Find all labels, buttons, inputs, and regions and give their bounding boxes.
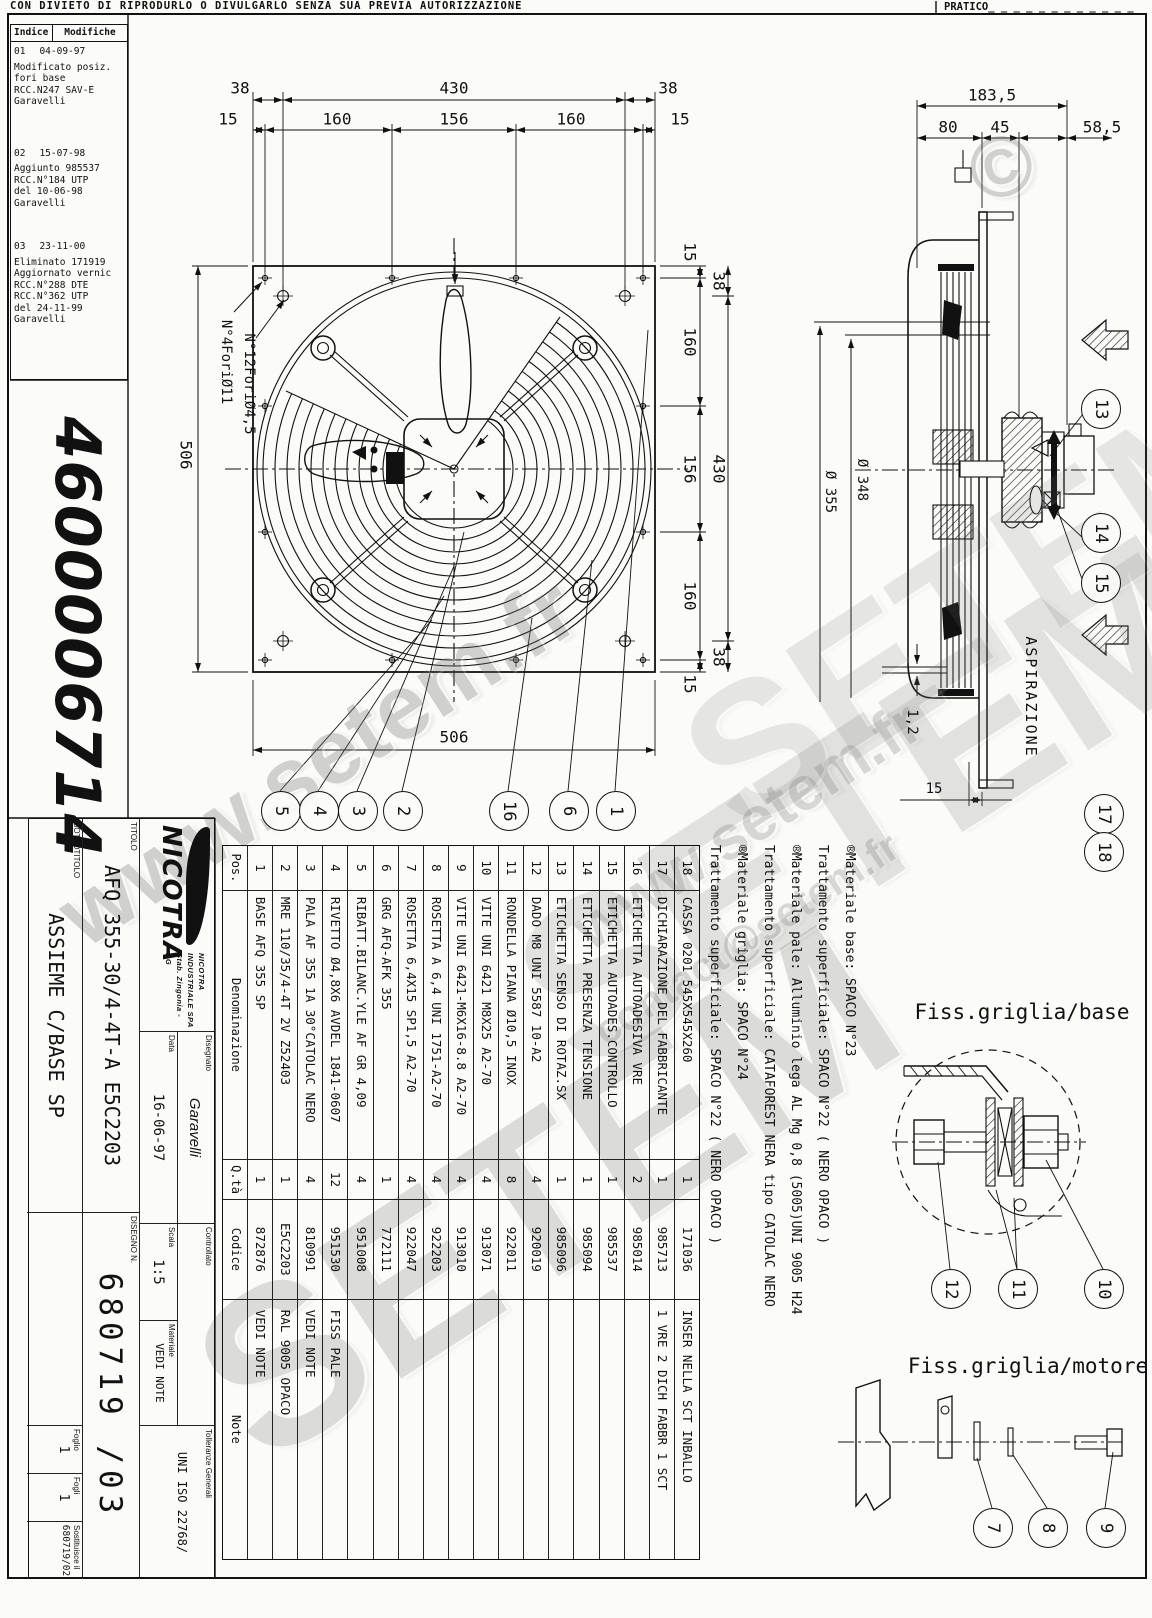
parts-row: 15ETICHETTA AUTOADES.CONTROLLO1985537 [599,846,624,1559]
parts-cell-qty: 4 [298,1160,322,1200]
document-number: 4600006714 [32,462,124,812]
revision-line: Garavelli [14,198,124,210]
fogli-cell: Fogli 1 [27,1474,82,1522]
document-number-text: 4600006714 [42,416,115,857]
parts-row: 5RIBATT.BILANC.YLE AF GR 4,094951008 [347,846,372,1559]
parts-row: 13ETICHETTA SENSO DI ROTAZ.SX1985096 [548,846,573,1559]
parts-row: 3PALA AF 355 1A 30°CATOLAC NERO4810991VE… [297,846,322,1559]
revision-line: Modificato posiz. [14,62,124,74]
parts-cell-den: DICHIARAZIONE DEL FABBRICANTE [650,891,674,1160]
foglio-cell: Foglio 1 [27,1426,82,1474]
parts-cell-pos: 18 [675,846,699,891]
parts-cell-code: 922047 [399,1200,423,1300]
scala-cell: Scala 1:5 [139,1224,177,1321]
parts-cell-note [449,1300,473,1559]
material-note-line: Trattamento superficiale: CATAFOREST NER… [755,845,782,1330]
detail-drawings [838,1050,1122,1510]
disegnato-cell: Disegnato Garavelli [177,1032,214,1224]
dim-label: 160 [681,582,700,611]
parts-row: 12DADO M8 UNI 5587 10-A24920019 [523,846,548,1559]
parts-cell-qty: 12 [323,1160,347,1200]
parts-table: 18CASSA 0201 545X545X2601171036INSER NEL… [222,845,700,1560]
revision-line: RCC.N247 SAV-E [14,85,124,97]
parts-cell-note [499,1300,523,1559]
dim-label: 506 [177,441,196,470]
dim-label: 80 [938,118,957,137]
balloon-18: 18 [1084,832,1124,872]
empty-cell [27,1213,82,1426]
parts-cell-note: 1 VRE 2 DICH FABBR 1 SCT [650,1300,674,1559]
parts-cell-code: 922203 [424,1200,448,1300]
revision-line: RCC.N°184 UTP [14,175,124,187]
fogli-value: 1 [56,1474,71,1521]
sottotitolo-label: SOTTOTITOLO [71,819,82,1212]
parts-cell-pos: 2 [273,846,297,891]
parts-cell-code: 922011 [499,1200,523,1300]
parts-cell-qty: 1 [600,1160,624,1200]
parts-cell-code: 772111 [374,1200,398,1300]
reproduction-disclaimer: CON DIVIETO DI RIPRODURLO O DIVULGARLO S… [10,0,523,12]
parts-cell-qty: 2 [625,1160,649,1200]
parts-cell-den: ETICHETTA AUTOADES.CONTROLLO [600,891,624,1160]
materiale-value: VEDI NOTE [153,1321,166,1425]
revision-entry: 0323-11-00Eliminato 171919Aggiornato ver… [11,241,127,326]
sostituisce-label: Sostituisce il [71,1522,82,1579]
parts-cell-qty: 1 [650,1160,674,1200]
sostituisce-cell: Sostituisce il 680719/02 [27,1522,82,1579]
side-view-drawing [855,150,1128,788]
parts-cell-note [474,1300,498,1559]
revision-index: 02 [14,148,25,160]
revision-line: Aggiunto 985537 [14,163,124,175]
parts-cell-note [399,1300,423,1559]
parts-row: 8ROSETTA A 6,4 UNI 1751-A2-704922203 [423,846,448,1559]
parts-cell-code: 810991 [298,1200,322,1300]
parts-cell-code: 985713 [650,1200,674,1300]
balloon-9: 9 [1086,1508,1126,1548]
revision-date: 04-09-97 [39,46,85,58]
dim-label: 506 [440,728,469,747]
revision-line: Garavelli [14,96,124,108]
parts-cell-qty: 1 [248,1160,272,1200]
dim-label: 156 [440,110,469,129]
parts-cell-den: ETICHETTA SENSO DI ROTAZ.SX [549,891,573,1160]
revision-line: del 10-06-98 [14,186,124,198]
holes-label-big: N°4ForiØ11 [218,320,234,404]
dim-label: 160 [557,110,586,129]
nicotra-logo-swoosh-icon [186,827,210,945]
company-sub: Stab. Zingonia - BG [163,953,185,1031]
parts-cell-pos: 11 [499,846,523,891]
parts-cell-code: 913071 [474,1200,498,1300]
parts-cell-pos: 7 [399,846,423,891]
parts-row: 16ETICHETTA AUTOADESIVA VRE2985014 [624,846,649,1559]
parts-cell-code: 985096 [549,1200,573,1300]
dim-label: 38 [658,79,677,98]
parts-cell-note: VEDI NOTE [248,1300,272,1559]
logo-cell: NICOTRA NICOTRA INDUSTRIALE SPA Stab. Zi… [139,819,214,1032]
controllato-label: Controllato [203,1224,214,1425]
materiale-cell: Materiale VEDI NOTE [139,1321,177,1426]
parts-row: 14ETICHETTA PRESENZA TENSIONE1985094 [573,846,598,1559]
balloon-15: 15 [1081,563,1121,603]
parts-cell-code: 985014 [625,1200,649,1300]
parts-cell-code: 985094 [574,1200,598,1300]
parts-row: 1BASE AFQ 355 SP1872876VEDI NOTE [247,846,272,1559]
revision-date: 15-07-98 [39,148,85,160]
parts-cell-den: RIVETTO Ø4,8X6 AVDEL 1841-0607 [323,891,347,1160]
parts-row: 4RIVETTO Ø4,8X6 AVDEL 1841-060712951530F… [322,846,347,1559]
material-note-line: Trattamento superficiale: SPACO N°22 ( N… [701,845,728,1330]
parts-cell-den: DADO M8 UNI 5587 10-A2 [524,891,548,1160]
disegno-label: DISEGNO N. [128,1213,139,1579]
parts-cell-qty: Q.tà [223,1160,247,1200]
parts-cell-note [549,1300,573,1559]
parts-cell-pos: 1 [248,846,272,891]
sottotitolo-value: ASSIEME C/BASE SP [44,819,68,1212]
sottotitolo-cell: SOTTOTITOLO ASSIEME C/BASE SP [27,819,82,1213]
parts-cell-den: CASSA 0201 545X545X260 [675,891,699,1160]
detail-base-title: Fiss.griglia/base [915,1000,1130,1024]
parts-cell-code: 985537 [600,1200,624,1300]
parts-cell-qty: 4 [348,1160,372,1200]
parts-cell-code: 920019 [524,1200,548,1300]
parts-cell-pos: 10 [474,846,498,891]
revision-line: fori base [14,73,124,85]
parts-cell-pos: 14 [574,846,598,891]
parts-cell-note: INSER NELLA SCT INBALLO [675,1300,699,1559]
parts-cell-qty: 4 [524,1160,548,1200]
parts-header-row: Pos.DenominazioneQ.tàCodiceNote [223,846,247,1559]
parts-cell-note: FISS PALE [323,1300,347,1559]
titolo-cell: TITOLO AFQ 355-30/4-4T-A E5C2203 [82,819,139,1213]
tolleranze-value: UNI ISO 22768/ [175,1426,189,1579]
parts-cell-den: VITE UNI 6421 M8X25 A2-70 [474,891,498,1160]
parts-cell-note [600,1300,624,1559]
balloon-1: 1 [596,791,636,831]
revision-index: 03 [14,241,25,253]
parts-cell-note [424,1300,448,1559]
parts-cell-den: RIBATT.BILANC.YLE AF GR 4,09 [348,891,372,1160]
parts-cell-qty: 1 [273,1160,297,1200]
data-label: Data [166,1032,177,1223]
pratico-field: PRATICO_ _ _ _ _ _ _ _ _ _ _ _ [944,1,1134,13]
dim-label: 38 [710,647,729,666]
parts-cell-code: 171036 [675,1200,699,1300]
dim-label: 430 [710,455,729,484]
revision-line: Garavelli [14,314,124,326]
parts-cell-den: Denominazione [223,891,247,1160]
parts-cell-note [524,1300,548,1559]
parts-row: 18CASSA 0201 545X545X2601171036INSER NEL… [674,846,699,1559]
parts-cell-qty: 4 [449,1160,473,1200]
parts-cell-pos: 6 [374,846,398,891]
revision-line: Eliminato 171919 [14,257,124,269]
parts-cell-note: VEDI NOTE [298,1300,322,1559]
parts-cell-pos: 4 [323,846,347,891]
parts-cell-code: 872876 [248,1200,272,1300]
parts-cell-note: RAL 9005 OPACO [273,1300,297,1559]
parts-cell-qty: 4 [424,1160,448,1200]
parts-cell-code: 951008 [348,1200,372,1300]
dim-label: 15 [681,242,700,261]
revision-col-modifiche: Modifiche [53,27,127,39]
dim-label: Ø 355 [822,471,838,513]
aspirazione-label: ASPIRAZIONE [1022,636,1040,757]
tolleranze-label: Tolleranze Generali [203,1426,214,1579]
dim-label: 38 [710,271,729,290]
controllato-cell: Controllato [177,1224,214,1426]
parts-cell-pos: Pos. [223,846,247,891]
dim-label: 58,5 [1083,118,1122,137]
material-note-line: ®Materiale griglia: SPACO N°24 [728,845,755,1330]
parts-cell-qty: 1 [675,1160,699,1200]
parts-cell-note: Note [223,1300,247,1559]
nicotra-logo: NICOTRA [156,825,186,953]
dim-label: 1,2 [904,709,920,734]
disegnato-value: Garavelli [186,1032,203,1223]
revision-table: Indice Modifiche 0104-09-97Modificato po… [10,24,128,380]
material-note-line: ®Materiale base: SPACO N°23 [836,845,863,1330]
balloon-11: 11 [998,1269,1038,1309]
parts-cell-pos: 8 [424,846,448,891]
fogli-label: Fogli [71,1474,82,1521]
dim-label: 15 [670,110,689,129]
revision-entry: 0104-09-97Modificato posiz.fori baseRCC.… [11,46,127,108]
revision-index: 01 [14,46,25,58]
dim-label: 183,5 [968,86,1016,105]
parts-cell-qty: 1 [574,1160,598,1200]
parts-cell-pos: 3 [298,846,322,891]
dim-label: 160 [323,110,352,129]
holes-label-small: N°12ForiØ4,5 [241,333,257,434]
parts-cell-qty: 4 [399,1160,423,1200]
company-name: NICOTRA INDUSTRIALE SPA [185,953,207,1031]
dim-label: 430 [440,79,469,98]
parts-cell-pos: 13 [549,846,573,891]
balloon-14: 14 [1081,513,1121,553]
revision-entries: 0104-09-97Modificato posiz.fori baseRCC.… [11,46,127,326]
parts-cell-note [625,1300,649,1559]
balloon-4: 4 [299,791,339,831]
dim-label: 45 [990,118,1009,137]
parts-cell-pos: 12 [524,846,548,891]
data-value: 16-06-97 [150,1032,166,1223]
material-note-line: ®Materiale pale: Alluminio lega AL Mg 0,… [782,845,809,1330]
parts-row: 10VITE UNI 6421 M8X25 A2-704913071 [473,846,498,1559]
dim-label: 156 [681,455,700,484]
parts-row: 17DICHIARAZIONE DEL FABBRICANTE19857131 … [649,846,674,1559]
parts-cell-den: PALA AF 355 1A 30°CATOLAC NERO [298,891,322,1160]
parts-cell-den: ETICHETTA PRESENZA TENSIONE [574,891,598,1160]
foglio-label: Foglio [71,1426,82,1473]
parts-cell-code: 951530 [323,1200,347,1300]
parts-cell-pos: 16 [625,846,649,891]
revision-line: Aggiornato vernic [14,268,124,280]
parts-cell-den: MRE 110/35/4-4T 2V Z52403 [273,891,297,1160]
dim-label: 160 [681,328,700,357]
scala-label: Scala [166,1224,177,1320]
parts-cell-den: RONDELLA PIANA Ø10,5 INOX [499,891,523,1160]
parts-cell-code: Codice [223,1200,247,1300]
parts-cell-den: ETICHETTA AUTOADESIVA VRE [625,891,649,1160]
parts-row: 7ROSETTA 6,4X15 SP1,5 A2-704922047 [398,846,423,1559]
front-view-drawing [225,238,688,702]
dim-label: Ø 348 [854,459,870,501]
parts-cell-note [574,1300,598,1559]
parts-cell-pos: 9 [449,846,473,891]
material-note-line: Trattamento superficiale: SPACO N°22 ( N… [809,845,836,1330]
detail-motor-title: Fiss.griglia/motore [908,1354,1148,1378]
parts-row: 11RONDELLA PIANA Ø10,5 INOX8922011 [498,846,523,1559]
balloon-7: 7 [973,1508,1013,1548]
dim-label: 15 [218,110,237,129]
parts-cell-code: 913010 [449,1200,473,1300]
drawing-sheet: CON DIVIETO DI RIPRODURLO O DIVULGARLO S… [0,0,1152,1618]
disegnato-label: Disegnato [203,1032,214,1223]
balloon-13: 13 [1081,389,1121,429]
parts-cell-den: VITE UNI 6421-M6X16-8.8 A2-70 [449,891,473,1160]
foglio-value: 1 [56,1426,71,1473]
parts-cell-code: E5C2203 [273,1200,297,1300]
revision-line: RCC.N°362 UTP [14,291,124,303]
balloon-10: 10 [1084,1269,1124,1309]
parts-row: 2MRE 110/35/4-4T 2V Z524031E5C2203RAL 90… [272,846,297,1559]
parts-cell-pos: 17 [650,846,674,891]
revision-line: RCC.N°288 DTE [14,280,124,292]
parts-cell-qty: 4 [474,1160,498,1200]
revision-col-indice: Indice [11,25,53,41]
balloon-2: 2 [383,791,423,831]
parts-cell-den: ROSETTA A 6,4 UNI 1751-A2-70 [424,891,448,1160]
disegno-cell: DISEGNO N. 680719 /03 [82,1213,139,1579]
parts-cell-den: ROSETTA 6,4X15 SP1,5 A2-70 [399,891,423,1160]
parts-cell-pos: 15 [600,846,624,891]
scala-value: 1:5 [150,1224,166,1320]
parts-row: 6GRG AFQ-AFK 3551772111 [373,846,398,1559]
parts-cell-pos: 5 [348,846,372,891]
balloon-16: 16 [489,791,529,831]
materiale-label: Materiale [166,1321,177,1425]
disegno-value: 680719 /03 [92,1213,128,1579]
data-cell: Data 16-06-97 [139,1032,177,1224]
balloon-3: 3 [338,791,378,831]
revision-entry: 0215-07-98Aggiunto 985537RCC.N°184 UTPde… [11,148,127,210]
material-notes: ®Materiale base: SPACO N°23Trattamento s… [695,845,863,1330]
sostituisce-value: 680719/02 [60,1522,71,1579]
parts-cell-qty: 1 [374,1160,398,1200]
parts-cell-den: GRG AFQ-AFK 355 [374,891,398,1160]
balloon-8: 8 [1028,1508,1068,1548]
parts-cell-note [348,1300,372,1559]
revision-date: 23-11-00 [39,241,85,253]
titolo-value: AFQ 355-30/4-4T-A E5C2203 [100,819,124,1212]
title-block: NICOTRA NICOTRA INDUSTRIALE SPA Stab. Zi… [28,818,215,1578]
titolo-label: TITOLO [128,819,139,1212]
balloon-5: 5 [261,791,301,831]
revision-line: del 24-11-99 [14,303,124,315]
parts-row: 9VITE UNI 6421-M6X16-8.8 A2-704913010 [448,846,473,1559]
balloon-6: 6 [549,791,589,831]
parts-cell-qty: 1 [549,1160,573,1200]
dim-label: 15 [681,674,700,693]
balloon-17: 17 [1084,794,1124,834]
parts-cell-note [374,1300,398,1559]
parts-cell-qty: 8 [499,1160,523,1200]
balloon-12: 12 [931,1269,971,1309]
parts-cell-den: BASE AFQ 355 SP [248,891,272,1160]
tolleranze-cell: Tolleranze Generali UNI ISO 22768/ [139,1426,214,1579]
revision-table-header: Indice Modifiche [11,25,127,42]
dim-label: 38 [230,79,249,98]
dim-label: 15 [926,781,943,797]
